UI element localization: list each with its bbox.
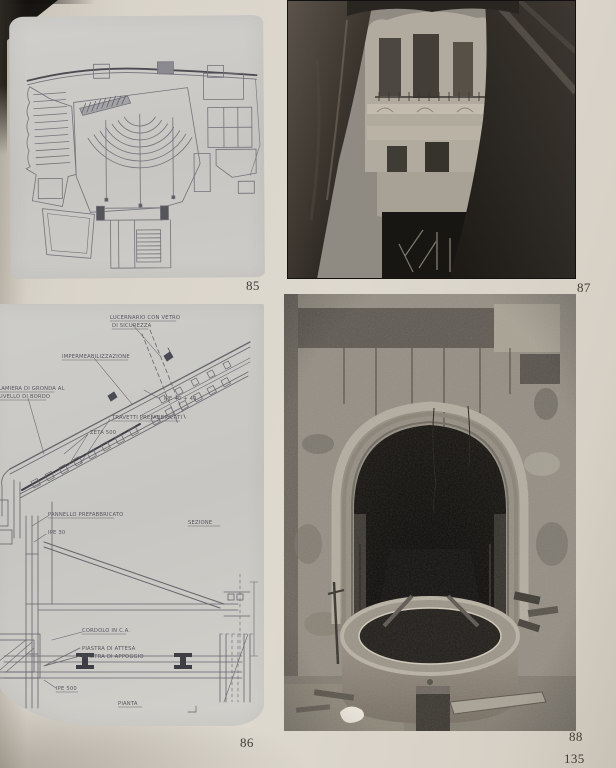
page-number: 135 [564,751,585,767]
plan-stage-and-stairs [96,206,170,269]
annotation-plate1: PIASTRA DI ATTESA [82,646,136,652]
figure-caption-85: 85 [246,278,260,294]
annotation-ipe500: IPE 500 [56,686,77,692]
figure-caption-88: 88 [569,729,583,745]
plan-lower-annex [42,208,94,258]
book-page-photo: { "page": { "number": "135" }, "figures"… [0,0,616,768]
annotation-skylight-1: LUCERNARIO CON VETRO [110,315,180,321]
annotation-zeta: ZETA 500 [90,430,116,436]
annotation-joists: TRAVETTI PREFABBRICATI [111,415,182,421]
annotation-profile: IPE 40 + 40 [164,396,197,402]
annotation-panel: PANNELLO PREFABBRICATO [48,512,123,518]
annotation-ipe30: IPE 30 [48,530,65,536]
figure-87-photo [287,0,576,279]
plan-hatched-band [80,96,131,115]
annotation-gutter-1: LAMIERA DI GRONDA AL [0,386,65,392]
figure-caption-86: 86 [240,735,254,751]
plan-right-rooms [193,73,260,193]
annotation-skylight-2: DI SICUREZZA [112,323,152,329]
annotation-gutter-2: LIVELLO DI BORDO [0,394,50,400]
eaves-gutter [0,469,20,544]
annotation-curb: CORDOLO IN C.A. [82,628,130,634]
figure-88-photo [284,294,576,731]
plan-left-wing [26,86,77,206]
annotation-waterproofing: IMPERMEABILIZZAZIONE [62,354,130,360]
floor-plan-drawing [9,15,265,279]
figure-86-section-drawing: LUCERNARIO CON VETRO DI SICUREZZA IMPERM… [0,304,264,726]
roof-section-drawing: LUCERNARIO CON VETRO DI SICUREZZA IMPERM… [0,304,264,726]
figure-caption-87: 87 [577,280,591,296]
skylight-detail [108,330,186,424]
annotation-section-title: SEZIONE [188,520,212,526]
annotation-plan-title: PIANTA [118,701,138,707]
annotation-plate2: PIASTRA DI APPOGGIO [82,654,144,660]
portal-photo [284,294,576,731]
figure-85-plan-drawing [9,15,265,279]
courtyard-photo [287,0,576,279]
